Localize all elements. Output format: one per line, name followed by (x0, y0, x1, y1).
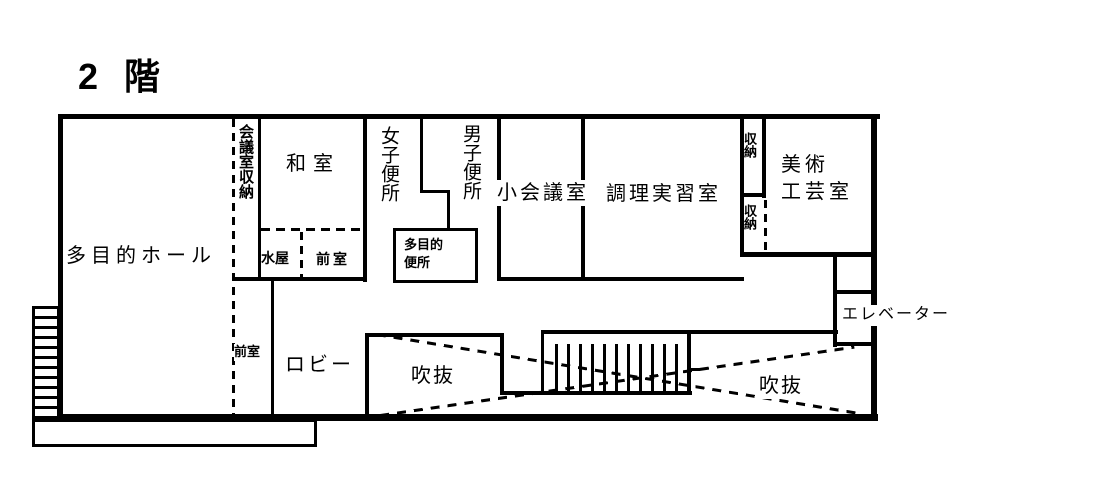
wall-washitsu-block-bottom (234, 277, 367, 281)
room-label-anteroom-top: 前室 (316, 250, 350, 268)
room-label-storage-upper: 収納 (743, 132, 756, 158)
room-label-anteroom-bottom: 前室 (234, 344, 260, 361)
room-label-art-craft-room: 美術 工芸室 (781, 152, 853, 206)
wall-outer-top (58, 114, 880, 119)
room-label-elevator: エレベーター (842, 305, 950, 326)
floor-title: 2 階 (78, 48, 168, 100)
wall-toilet-divider-lower (447, 190, 450, 232)
room-label-storage-lower: 収納 (743, 204, 756, 230)
room-label-void-left: 吹抜 (411, 363, 455, 389)
wall-lobby-left (271, 281, 274, 415)
wall-void-left-side (365, 333, 369, 416)
room-label-meeting-room-storage: 会議室収納 (238, 124, 253, 199)
wall-void-left-right (500, 333, 504, 394)
wall-dashed-storage-lower (764, 200, 767, 250)
annex-outline (32, 419, 317, 447)
room-label-small-meeting-room: 小会議室 (497, 180, 589, 206)
room-label-japanese-room: 和室 (286, 151, 340, 177)
wall-washitsu-right (363, 119, 367, 282)
wall-toilet-divider-upper (420, 119, 423, 193)
wall-toilet-jog (420, 190, 450, 193)
wall-rooms-bottom (497, 277, 744, 281)
wall-storage-upper-right (762, 119, 766, 198)
room-label-lobby: ロビー (285, 352, 354, 378)
room-label-multipurpose-hall: 多目的ホール (66, 243, 216, 269)
wall-outer-right (871, 114, 877, 421)
floor-plan-2f: 2 階 多目的ホール 会議室収納 和室 水屋 前室 女子便所 (0, 0, 1098, 485)
wall-art-room-bottom (740, 252, 877, 257)
room-label-void-right: 吹抜 (759, 373, 803, 399)
room-label-womens-toilet: 女子便所 (379, 126, 398, 202)
exterior-stairs (32, 306, 60, 419)
room-label-multipurpose-toilet: 多目的 便所 (404, 236, 443, 271)
room-label-mizuya: 水屋 (261, 249, 289, 267)
wall-dashed-mizuya-divider (300, 232, 303, 277)
room-label-cooking-practice-room: 調理実習室 (606, 181, 721, 207)
wall-dashed-hall-boundary (232, 119, 235, 415)
wall-storage-divider (740, 193, 766, 197)
wall-elevator-divider (836, 290, 873, 294)
wall-dashed-washitsu-bottom (261, 228, 363, 231)
room-label-mens-toilet: 男子便所 (461, 124, 480, 200)
stairs-treads (546, 344, 689, 391)
